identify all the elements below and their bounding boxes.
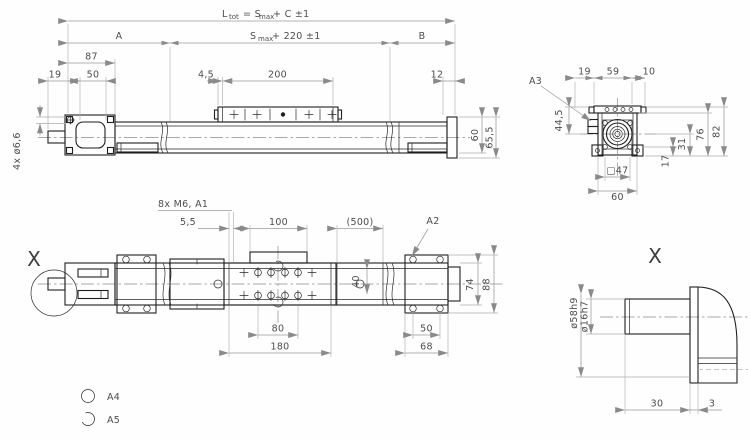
dim-74: 74 [465, 278, 476, 291]
bottom-view-details [31, 256, 448, 316]
dim-60-height: 60 [470, 129, 481, 142]
a3-leader [541, 86, 591, 121]
dim-40: 40 [351, 275, 362, 288]
dim-50: 50 [87, 70, 100, 81]
a5-symbol-arc [82, 413, 94, 426]
dim-segment-b: B [419, 31, 426, 42]
bottom-view: X 8x M6, A1 5,5 100 (500) A2 40 74 88 80… [27, 199, 505, 357]
dim-76: 76 [696, 128, 707, 141]
cad-drawing: L tot = S max + C ±1 A S max + 220 ±1 B … [0, 0, 750, 440]
dim-180: 180 [270, 342, 289, 353]
dim-17: 17 [661, 155, 672, 168]
dim-19-end: 19 [578, 67, 591, 78]
dim-31: 31 [677, 138, 688, 151]
shaft-journal [625, 299, 690, 334]
dim-50-bottom: 50 [420, 324, 433, 335]
detail-dimension-lines [581, 294, 722, 410]
bottom-centerline [38, 246, 505, 323]
side-view: L tot = S max + C ±1 A S max + 220 ±1 B … [12, 9, 500, 170]
dim-mounting-holes: 4x ø6,6 [12, 132, 23, 170]
dim-100: 100 [269, 217, 288, 228]
detail-label-x: X [648, 244, 662, 268]
drawing-canvas: L tot = S max + C ±1 A S max + 220 ±1 B … [0, 0, 750, 440]
detail-x-circle [31, 270, 77, 316]
dim-square-47: □47 [607, 166, 629, 177]
side-extension-lines [36, 24, 500, 158]
dim-82: 82 [712, 125, 723, 138]
dim-65-5: 65,5 [485, 126, 496, 148]
dim-12: 12 [431, 70, 444, 81]
detail-extension-lines [576, 299, 698, 414]
carriage-center-dot [281, 112, 285, 116]
legend-a4: A4 [107, 392, 120, 403]
dim-200: 200 [268, 70, 287, 81]
housing-corner [698, 287, 737, 383]
dim-stroke: S [250, 31, 256, 42]
dim-segment-a: A [116, 31, 123, 42]
dim-total-length-sub2: max [259, 13, 274, 21]
dim-80: 80 [272, 324, 285, 335]
head-cavity [76, 122, 105, 148]
dim-87: 87 [85, 52, 98, 63]
detail-x-view: X ø58h9 ø16h7 30 3 [569, 244, 748, 414]
label-a2: A2 [426, 216, 439, 227]
side-view-geometry [48, 107, 457, 158]
bottom-view-geometry [48, 252, 460, 313]
dim-total-length-sub: tot [229, 13, 239, 21]
dim-19: 19 [49, 70, 62, 81]
a4-symbol-circle [82, 390, 95, 403]
dim-stroke-tail: + 220 ±1 [272, 31, 321, 42]
dim-dia-16h7: ø16h7 [580, 301, 591, 332]
dim-59: 59 [607, 67, 620, 78]
label-a3: A3 [529, 76, 542, 87]
end-view: A3 19 59 10 44,5 76 82 31 17 □47 60 [529, 67, 728, 204]
legend: A4 A5 [82, 390, 121, 427]
dim-3: 3 [709, 399, 715, 410]
a2-leader [412, 229, 428, 256]
dim-total-length: L [222, 9, 228, 20]
break-line [161, 122, 168, 153]
dim-30: 30 [651, 399, 664, 410]
dim-stroke-sub: max [258, 35, 273, 43]
dim-dia-58h9: ø58h9 [569, 297, 580, 328]
dim-4-5: 4,5 [198, 70, 214, 81]
dim-68: 68 [420, 342, 433, 353]
dim-10: 10 [643, 67, 656, 78]
view-label-x: X [27, 247, 41, 271]
dim-88: 88 [482, 278, 493, 291]
dim-44-5: 44,5 [554, 109, 565, 131]
dim-total-length-tail: + C ±1 [273, 9, 309, 20]
dim-5-5: 5,5 [180, 217, 196, 228]
legend-a5: A5 [107, 415, 120, 426]
dim-500: (500) [346, 217, 373, 228]
detail-details [630, 299, 738, 364]
note-8x-m6-a1: 8x M6, A1 [158, 199, 208, 210]
flange-plate [690, 287, 698, 383]
detail-geometry [625, 287, 737, 383]
carriage-top-plate [250, 252, 307, 263]
drive-shaft [48, 131, 65, 143]
side-port-a3 [588, 120, 598, 127]
bottom-dimension-lines [158, 211, 494, 354]
dim-60-width: 60 [611, 192, 624, 203]
end-centerlines [580, 98, 656, 176]
